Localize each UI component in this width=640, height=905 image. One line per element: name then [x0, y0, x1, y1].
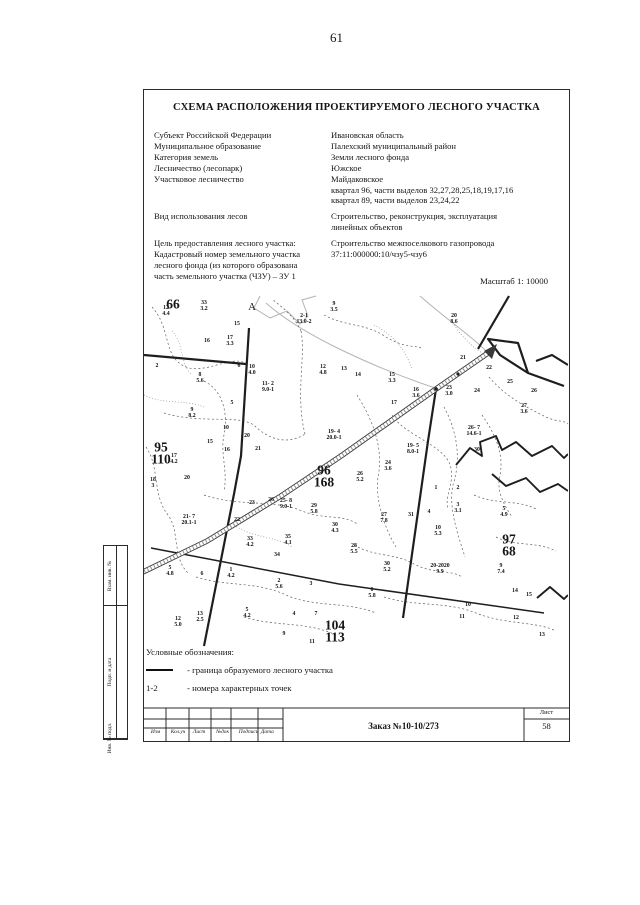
- map-label: 17: [391, 400, 397, 406]
- side-strip-label: Инв. № подл.: [107, 723, 113, 754]
- legend-heading: Условные обозначения:: [146, 647, 333, 657]
- map-label: 20: [184, 475, 190, 481]
- legend-item-label: - граница образуемого лесного участка: [187, 665, 333, 675]
- sheet-number: 58: [524, 721, 569, 731]
- info-row-label: [154, 185, 331, 196]
- info-row-value: Ивановская область: [331, 130, 562, 141]
- map-label: 7: [315, 611, 318, 617]
- quarter-label: 104 113: [325, 620, 345, 643]
- map-label: 22: [486, 365, 492, 371]
- info-row-label: Участковое лесничество: [154, 174, 331, 185]
- map-label: 6: [201, 571, 204, 577]
- info-row: квартал 96, части выделов 32,27,28,25,18…: [154, 185, 562, 196]
- map-label: 3 3.1: [454, 502, 461, 514]
- forest-map: 66 95 110 96 168 97 68 104 113 12 4.4 33…: [144, 295, 568, 647]
- side-strip-label: Подп. и дата: [107, 658, 113, 687]
- map-label: 19- 4 20.0-1: [327, 429, 342, 441]
- map-label: 12 4.8: [319, 364, 326, 376]
- map-label: 3: [310, 581, 313, 587]
- legend: Условные обозначения: - граница образуем…: [146, 647, 333, 693]
- legend-item-label: - номера характерных точек: [187, 683, 292, 693]
- map-label: 34: [274, 552, 280, 558]
- info-row-label: Субъект Российской Федерации: [154, 130, 331, 141]
- map-label: 1 4.2: [227, 567, 234, 579]
- map-label: 13: [341, 366, 347, 372]
- map-label: 26: [531, 388, 537, 394]
- title-block-columns: Изм Кол.уч Лист №док Подпись Дата: [144, 729, 283, 735]
- info-row-value: Земли лесного фонда: [331, 152, 562, 163]
- info-row-label: Категория земель: [154, 152, 331, 163]
- side-strip-divider: [116, 606, 117, 738]
- map-label: 25: [507, 379, 513, 385]
- legend-item-boundary: - граница образуемого лесного участка: [146, 665, 333, 675]
- map-label: 21: [460, 355, 466, 361]
- info-row-label: Вид использования лесов: [154, 211, 331, 222]
- side-strip-cell: Подп. и дата: [104, 606, 127, 738]
- quarter-label: 97 68: [502, 534, 516, 557]
- map-label: 33 4.2: [246, 536, 253, 548]
- title-block-column-label: №док: [209, 729, 236, 735]
- legend-item-points: 1-2 - номера характерных точек: [146, 683, 333, 693]
- map-label: 22: [234, 517, 240, 523]
- map-label: 15: [234, 321, 240, 327]
- side-strip-cell: Инв. № подл.: [104, 738, 127, 739]
- info-row-label: часть земельного участка (ЧЗУ) – ЗУ 1: [154, 271, 331, 282]
- map-label: 21- 7 20.1-1: [182, 514, 197, 526]
- map-label: 5 4.2: [243, 607, 250, 619]
- info-row-value: линейных объектов: [331, 222, 562, 233]
- map-label: 18 3: [150, 477, 156, 489]
- map-label: 16: [204, 338, 210, 344]
- map-quarter-boundaries: [144, 328, 544, 646]
- characteristic-point: [434, 387, 438, 391]
- map-label: 33 3.2: [200, 300, 207, 312]
- sheet-count-label: Лист: [524, 709, 569, 716]
- info-row-value: Палехский муниципальный район: [331, 141, 562, 152]
- info-row-label: Кадастровый номер земельного участка: [154, 249, 331, 260]
- map-label: 11- 2 9.0-1: [262, 381, 274, 393]
- map-label: 11: [309, 639, 314, 645]
- map-label: 26- 7 14.6-1: [467, 425, 482, 437]
- schema-title: СХЕМА РАСПОЛОЖЕНИЯ ПРОЕКТИРУЕМОГО ЛЕСНОГ…: [144, 102, 569, 113]
- map-label: 30 5.2: [383, 561, 390, 573]
- info-row-label: лесного фонда (из которого образована: [154, 260, 331, 271]
- title-block-column-label: Изм: [144, 729, 167, 735]
- map-label: 29 5.8: [310, 503, 317, 515]
- quarter-label: 96 168: [314, 465, 334, 488]
- map-label: 4: [293, 611, 296, 617]
- info-row: линейных объектов: [154, 222, 562, 233]
- map-label: 20 8.6: [450, 313, 457, 325]
- quarter-label: 95 110: [151, 442, 171, 465]
- map-label: 6 5.8: [368, 587, 375, 599]
- map-label: 2-1 13.0-2: [297, 313, 312, 325]
- map-label: 5 4.8: [166, 565, 173, 577]
- info-row-label: Муниципальное образование: [154, 141, 331, 152]
- map-label: 17 3.3: [226, 335, 233, 347]
- sheet-frame: СХЕМА РАСПОЛОЖЕНИЯ ПРОЕКТИРУЕМОГО ЛЕСНОГ…: [143, 89, 570, 742]
- info-row: квартал 89, части выделов 23,24,22: [154, 195, 562, 206]
- points-symbol: 1-2: [146, 683, 187, 693]
- map-label: 10: [465, 602, 471, 608]
- drawing-frame-side-strip: Взам. инв. № Подп. и дата Инв. № подл.: [103, 545, 128, 740]
- map-label: 10: [223, 425, 229, 431]
- map-label: 13 2.5: [196, 611, 203, 623]
- map-label: 11: [459, 614, 464, 620]
- order-number: Заказ №10-10/273: [283, 721, 524, 731]
- map-label: 2 5.6: [275, 578, 282, 590]
- map-label: 20: [244, 433, 250, 439]
- info-row-label: [154, 222, 331, 233]
- map-label: 8 5.6: [196, 372, 203, 384]
- side-strip-cell: Взам. инв. №: [104, 546, 127, 606]
- map-label: 15: [207, 439, 213, 445]
- info-row-label: Цель предоставления лесного участка:: [154, 238, 331, 249]
- map-label: 1: [435, 485, 438, 491]
- info-row-label: [154, 195, 331, 206]
- info-row: Цель предоставления лесного участка: Стр…: [154, 238, 562, 249]
- map-label: 24 3.6: [384, 460, 391, 472]
- map-label: 20-2020 9.9: [430, 563, 449, 575]
- map-label: 15: [526, 592, 532, 598]
- map-label: 9 3.5: [330, 301, 337, 313]
- map-label: 24: [474, 388, 480, 394]
- map-label: 2: [156, 363, 159, 369]
- side-strip-divider: [116, 546, 117, 605]
- info-table: Субъект Российской Федерации Ивановская …: [154, 130, 562, 282]
- map-label: 30 4.3: [331, 522, 338, 534]
- boundary-line-symbol: [146, 669, 173, 671]
- map-label: 28 5.5: [350, 543, 357, 555]
- info-row: Субъект Российской Федерации Ивановская …: [154, 130, 562, 141]
- title-block-column-label: Кол.уч: [167, 729, 189, 735]
- map-label: 26: [268, 497, 274, 503]
- info-row-value: Майдаковское: [331, 174, 562, 185]
- map-label: 12: [513, 615, 519, 621]
- map-label: 12 4.4: [162, 305, 169, 317]
- map-label: 6: [238, 363, 241, 369]
- map-label: 5: [231, 400, 234, 406]
- map-label: 27 3.6: [520, 403, 527, 415]
- info-row-value: [331, 260, 562, 271]
- info-row: Лесничество (лесопарк) Южское: [154, 163, 562, 174]
- map-label: 25- 8 9.0-1: [280, 498, 292, 510]
- info-row-label: Лесничество (лесопарк): [154, 163, 331, 174]
- info-row-value: квартал 89, части выделов 23,24,22: [331, 195, 562, 206]
- map-label: 10 4.0: [248, 364, 255, 376]
- info-row-value: 37:11:000000:10/чзу5-чзу6: [331, 249, 562, 260]
- map-label: 4: [428, 509, 431, 515]
- info-row: Вид использования лесов Строительство, р…: [154, 211, 562, 222]
- map-label: 14: [512, 588, 518, 594]
- info-row: Категория земель Земли лесного фонда: [154, 152, 562, 163]
- map-label: 35 4.1: [284, 534, 291, 546]
- map-label: 9 8.2: [188, 407, 195, 419]
- map-scale-note: Масштаб 1: 10000: [396, 276, 548, 286]
- map-label: 12 5.0: [174, 616, 181, 628]
- title-block-column-label: Подпись: [236, 729, 261, 735]
- map-label: 10 5.3: [434, 525, 441, 537]
- map-label: 16: [224, 447, 230, 453]
- map-label: 9 7.4: [497, 563, 504, 575]
- map-label: 27 7.8: [380, 512, 387, 524]
- side-strip-label: Взам. инв. №: [107, 560, 113, 590]
- map-label: 23 3.0: [445, 385, 452, 397]
- map-label: 16 3.6: [412, 387, 419, 399]
- map-label: 19- 5 8.0-1: [407, 443, 419, 455]
- title-block-column-label: Дата: [261, 729, 274, 735]
- map-label: 15 3.3: [388, 372, 395, 384]
- map-label: 2: [457, 485, 460, 491]
- map-parcel-lines: [144, 299, 568, 635]
- info-row: Участковое лесничество Майдаковское: [154, 174, 562, 185]
- map-label: 31: [408, 512, 414, 518]
- map-label: 9: [283, 631, 286, 637]
- page-number: 61: [330, 30, 343, 46]
- info-row-value: Строительство межпоселкового газопровода: [331, 238, 562, 249]
- info-row: Муниципальное образование Палехский муни…: [154, 141, 562, 152]
- map-label: 26 5.2: [356, 471, 363, 483]
- map-label: 13: [539, 632, 545, 638]
- info-row-value: Южское: [331, 163, 562, 174]
- area-letter-label: А: [248, 305, 256, 311]
- map-label: 23: [249, 500, 255, 506]
- info-row: Кадастровый номер земельного участка 37:…: [154, 249, 562, 260]
- map-label: 30: [474, 447, 480, 453]
- characteristic-point: [456, 372, 459, 375]
- info-row-value: Строительство, реконструкция, эксплуатац…: [331, 211, 562, 222]
- info-row-value: квартал 96, части выделов 32,27,28,25,18…: [331, 185, 562, 196]
- scanned-document-page: 61 СХЕМА РАСПОЛОЖЕНИЯ ПРОЕКТИРУЕМОГО ЛЕС…: [0, 0, 640, 905]
- map-label: 17 4.2: [170, 453, 177, 465]
- map-label: 5 4.9: [500, 506, 507, 518]
- title-block-column-label: Лист: [189, 729, 209, 735]
- map-light-lines: [254, 296, 487, 388]
- info-row: лесного фонда (из которого образована: [154, 260, 562, 271]
- map-label: 21: [255, 446, 261, 452]
- map-label: 14: [355, 372, 361, 378]
